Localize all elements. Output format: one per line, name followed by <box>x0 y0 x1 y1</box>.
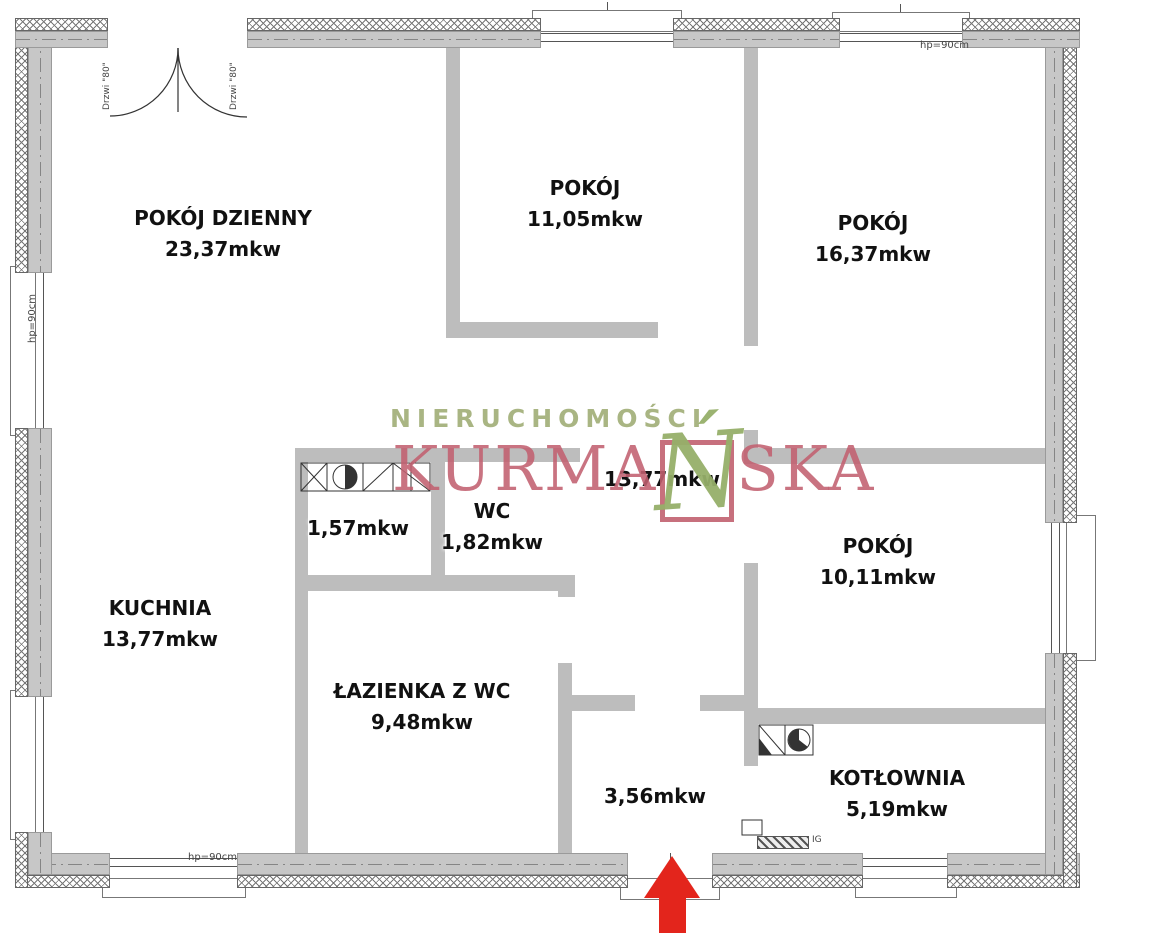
room-area: 11,05mkw <box>527 204 643 235</box>
wall-exterior-top <box>247 18 541 31</box>
room-area: 16,37mkw <box>815 239 931 270</box>
wall-exterior-top <box>673 18 840 31</box>
wall-interior <box>758 448 1045 464</box>
room-name: KUCHNIA <box>102 593 218 624</box>
wall-exterior-left <box>28 428 52 697</box>
window-glass <box>541 33 673 34</box>
wall-interior <box>558 663 572 853</box>
wall-exterior-top <box>962 31 1080 48</box>
room-area: 23,37mkw <box>134 234 312 265</box>
room-label-room-1011: POKÓJ 10,11mkw <box>820 531 936 593</box>
wall-interior <box>758 708 1045 724</box>
window-glass <box>1059 523 1060 653</box>
window-frame <box>832 12 970 32</box>
wall-interior <box>572 695 635 711</box>
wall-exterior-top <box>673 31 840 48</box>
room-name: POKÓJ <box>815 208 931 239</box>
double-entry-door-swing-icon <box>110 48 247 117</box>
room-area: 5,19mkw <box>829 794 965 825</box>
room-label-kitchen: KUCHNIA 13,77mkw <box>102 593 218 655</box>
gas-inlet-label: IG <box>812 835 822 845</box>
room-label-boiler-room: KOTŁOWNIA 5,19mkw <box>829 763 965 825</box>
entrance-arrow-icon <box>644 856 700 898</box>
window-frame <box>532 10 682 32</box>
window-glass <box>541 41 673 42</box>
room-area: 3,56mkw <box>604 781 706 812</box>
room-name: POKÓJ <box>820 531 936 562</box>
room-name: WC <box>441 496 543 527</box>
wall-interior <box>744 48 758 346</box>
window-frame <box>102 878 246 898</box>
wall-exterior-right <box>1063 31 1077 523</box>
wall-exterior-top <box>15 18 108 31</box>
window-height-label-left: hp=90cm <box>27 294 38 343</box>
room-name: KOTŁOWNIA <box>829 763 965 794</box>
gas-inlet-hatch <box>757 836 809 849</box>
room-name: ŁAZIENKA Z WC <box>334 676 511 707</box>
window-height-label-bottom: hp=90cm <box>188 852 237 863</box>
room-area: 13,77mkw <box>604 464 720 495</box>
window-glass <box>840 33 962 34</box>
room-area: 1,57mkw <box>307 513 409 544</box>
wall-exterior-left <box>28 832 52 875</box>
door-size-label-left: Drzwi "80" <box>102 62 112 110</box>
wall-interior <box>446 48 460 322</box>
agency-watermark: NIERUCHOMOŚCI KURMA Ń SKA <box>390 404 707 433</box>
window-glass <box>863 866 947 867</box>
room-area: 10,11mkw <box>820 562 936 593</box>
window-glass <box>43 273 44 428</box>
window-frame <box>10 690 36 840</box>
room-label-bathroom: ŁAZIENKA Z WC 9,48mkw <box>334 676 511 738</box>
wall-interior <box>295 448 580 462</box>
room-label-pantry: 1,57mkw <box>307 513 409 544</box>
fixtures-overlay <box>0 0 1174 933</box>
wall-exterior-bottom <box>237 853 628 875</box>
wall-exterior-top <box>247 31 541 48</box>
room-label-room-1105: POKÓJ 11,05mkw <box>527 173 643 235</box>
wall-exterior-bottom <box>712 875 863 888</box>
window-frame <box>10 266 36 436</box>
wall-exterior-right <box>1045 653 1063 875</box>
wall-interior <box>700 695 744 711</box>
wall-exterior-bottom <box>15 875 110 888</box>
wall-interior <box>446 322 658 338</box>
room-name: POKÓJ DZIENNY <box>134 203 312 234</box>
window-glass <box>1051 523 1052 653</box>
entrance-arrow-shaft <box>659 897 686 933</box>
wall-exterior-bottom <box>712 853 863 875</box>
room-area: 9,48mkw <box>334 707 511 738</box>
room-label-wc: WC 1,82mkw <box>441 496 543 558</box>
wall-exterior-right <box>1045 31 1063 523</box>
door-size-label-right: Drzwi "80" <box>229 62 239 110</box>
room-label-room-1637: POKÓJ 16,37mkw <box>815 208 931 270</box>
floor-plan: POKÓJ DZIENNY 23,37mkw POKÓJ 11,05mkw PO… <box>0 0 1174 933</box>
wall-exterior-left <box>15 832 28 888</box>
wall-exterior-right <box>1063 653 1077 888</box>
wall-exterior-top <box>962 18 1080 31</box>
room-label-hall: 13,77mkw <box>604 464 720 495</box>
wall-interior <box>308 575 575 591</box>
window-frame <box>1066 515 1096 661</box>
room-label-hall-entry: 3,56mkw <box>604 781 706 812</box>
room-area: 1,82mkw <box>441 527 543 558</box>
wall-interior <box>744 430 758 464</box>
wall-exterior-left <box>15 31 28 273</box>
window-glass <box>863 858 947 859</box>
wall-exterior-bottom <box>237 875 628 888</box>
wall-exterior-left <box>28 31 52 273</box>
window-frame <box>855 878 957 898</box>
window-glass <box>43 697 44 832</box>
window-glass <box>110 866 237 867</box>
room-area: 13,77mkw <box>102 624 218 655</box>
wall-interior <box>295 448 308 853</box>
room-name: POKÓJ <box>527 173 643 204</box>
kitchen-cabinet-sink-icon <box>301 463 430 491</box>
wall-interior <box>744 563 758 766</box>
window-height-label-top: hp=90cm <box>920 40 969 51</box>
room-label-living-room: POKÓJ DZIENNY 23,37mkw <box>134 203 312 265</box>
wall-exterior-bottom <box>947 875 1080 888</box>
wall-exterior-left <box>15 428 28 697</box>
wall-exterior-top <box>15 31 108 48</box>
watermark-line1: NIERUCHOMOŚCI <box>390 404 707 433</box>
